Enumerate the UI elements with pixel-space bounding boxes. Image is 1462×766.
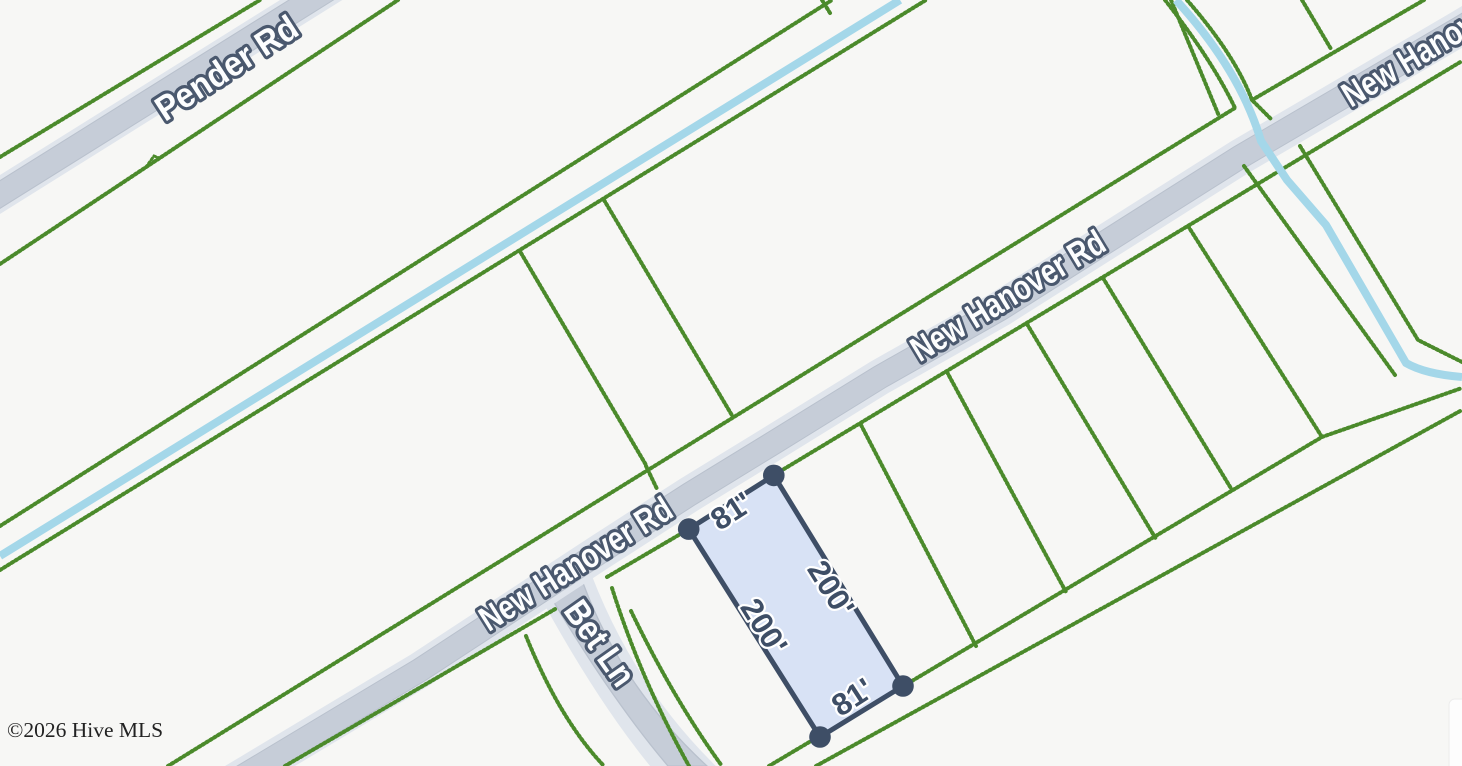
svg-text:©2026 Hive MLS: ©2026 Hive MLS <box>7 718 163 742</box>
